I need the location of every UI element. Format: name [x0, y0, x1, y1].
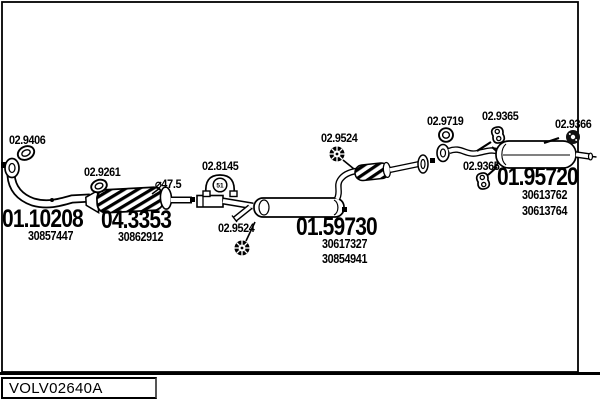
diameter-note: ⌀47.5	[155, 177, 181, 191]
footer-divider	[0, 372, 600, 375]
oem-number-rear-silencer-2: 30613764	[522, 204, 567, 218]
rear-flange-shape	[437, 142, 499, 162]
part-label-grommet: 02.9366	[555, 119, 591, 131]
drawing-code-box: VOLV02640A	[1, 377, 157, 399]
part-label-sealing-ring: 02.9261	[84, 167, 120, 179]
oem-number-rear-silencer-1: 30613762	[522, 188, 567, 202]
diagram-line-art: 51	[0, 0, 600, 400]
part-label-lock-washer-mid: 02.9524	[321, 133, 357, 145]
oem-number-front-pipe: 30857447	[28, 229, 73, 243]
tail-pipe-tip	[589, 153, 593, 160]
resonator-shape	[354, 162, 391, 181]
grommet-icon	[566, 130, 580, 144]
part-label-flange-gasket: 02.9719	[427, 116, 463, 128]
mount-bracket-icon: 51	[203, 175, 237, 197]
intermediate-pipe-shape	[337, 155, 435, 199]
part-label-clamp: 02.9406	[9, 135, 45, 147]
pipe-coupling-shape	[171, 196, 223, 208]
frame-border	[2, 2, 578, 372]
drawing-code: VOLV02640A	[9, 380, 103, 397]
oem-number-centre-silencer-2: 30854941	[322, 252, 367, 266]
oem-number-centre-silencer-1: 30617327	[322, 237, 367, 251]
oem-number-catalytic-converter: 30862912	[118, 230, 163, 244]
part-label-mount-bracket: 02.8145	[202, 161, 238, 173]
lock-washer-mid-icon	[330, 147, 345, 162]
part-label-rubber-hanger-low: 02.9365	[463, 161, 499, 173]
exhaust-system-diagram: 51	[0, 0, 600, 400]
lock-washer-front-icon	[235, 241, 250, 256]
part-label-rubber-hanger-top: 02.9365	[482, 111, 518, 123]
front-pipe-shape	[1, 159, 90, 204]
rubber-hanger-top-icon	[491, 126, 505, 144]
part-label-lock-washer-front: 02.9524	[218, 223, 254, 235]
bracket-size-mark: 51	[216, 182, 224, 189]
flange-gasket-icon	[439, 128, 453, 142]
